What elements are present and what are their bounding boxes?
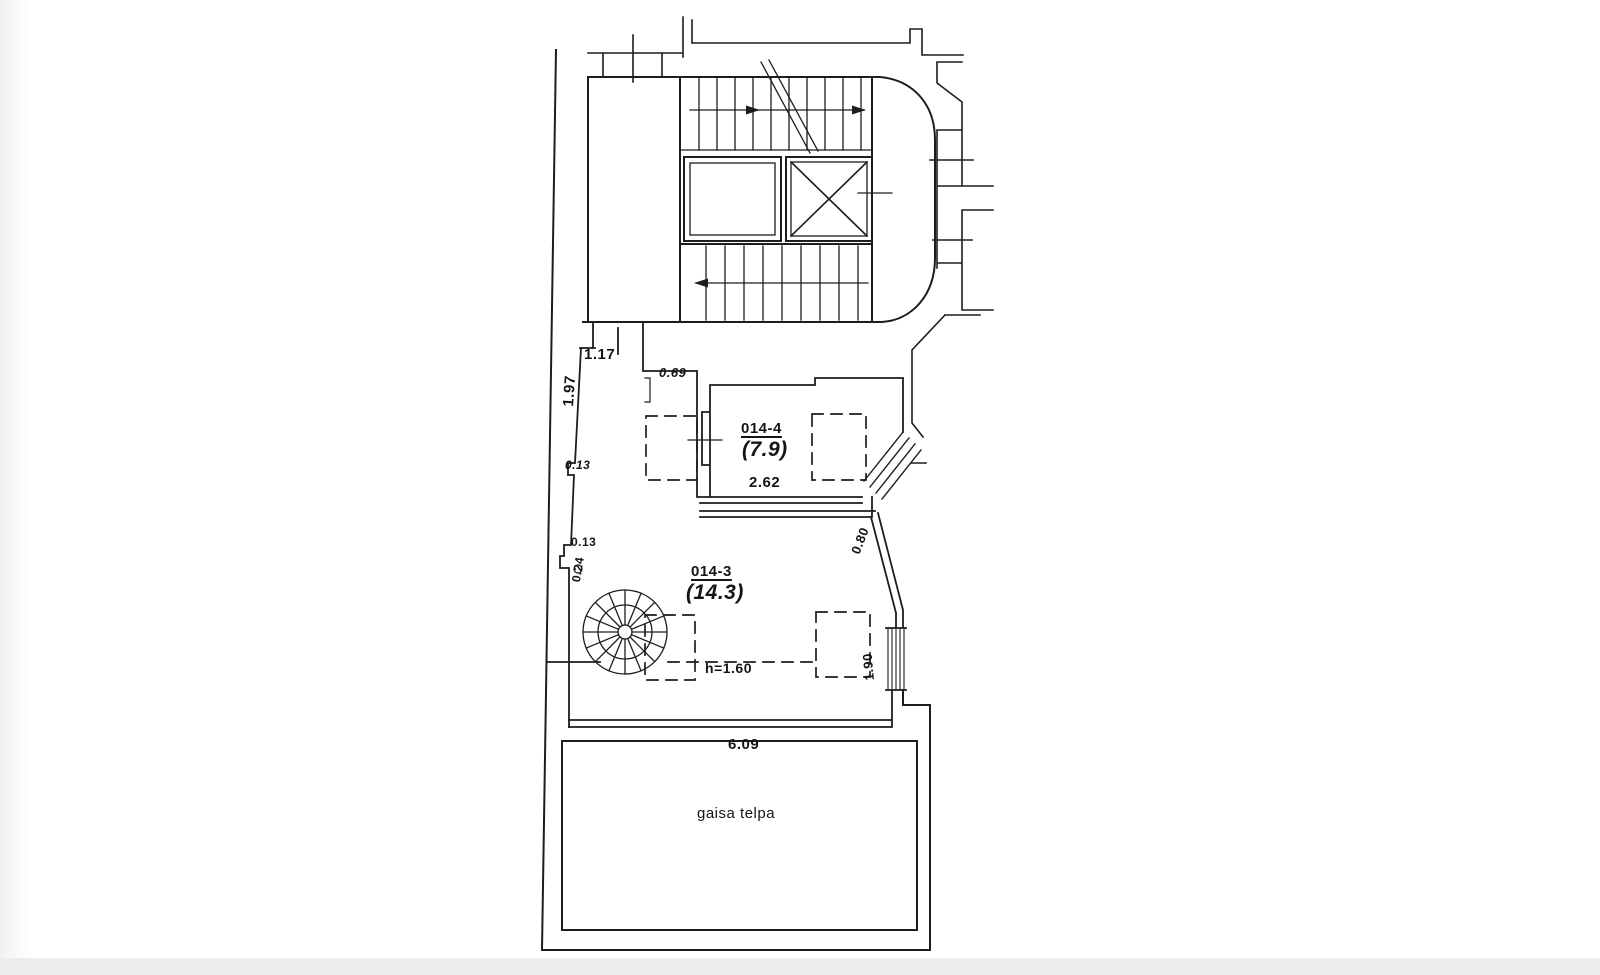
dim-window: 1.90 (861, 653, 876, 681)
staircase-enclosure (583, 77, 935, 322)
dim-jog: 0.24 (570, 556, 586, 583)
upper-stair-flight (680, 60, 872, 153)
dim-west-wall: 1.97 (561, 375, 578, 407)
page-bottom-margin (0, 958, 1600, 975)
floor-plan-drawing (0, 0, 1600, 975)
entry-steps (864, 432, 921, 499)
dim-low-ceiling: h=1.60 (705, 661, 752, 675)
room-014-4-id: 014-4 (741, 421, 782, 436)
dim-step: 0.69 (659, 366, 686, 379)
dim-stair-opening: 1.17 (584, 347, 615, 362)
room-014-4-walls (643, 322, 921, 517)
attic-west-wall (548, 322, 618, 727)
void-room-walls (562, 741, 917, 930)
dim-offset-a: 0.13 (565, 459, 590, 471)
room-014-3-id: 014-3 (691, 564, 732, 579)
room-014-4-area: (7.9) (742, 439, 788, 460)
door-jamb-mark (645, 378, 650, 402)
dim-room4-width: 2.62 (749, 475, 780, 490)
spiral-staircase (574, 565, 667, 674)
room-014-3-area: (14.3) (686, 582, 744, 603)
lower-stair-flight (694, 246, 868, 320)
adjacent-walls-right (911, 62, 993, 463)
dim-void-width: 6.09 (728, 737, 759, 752)
stair-direction-arrow (852, 106, 866, 115)
dim-offset-b: 0.13 (571, 536, 596, 548)
void-room-label: gaisa telpa (697, 806, 775, 821)
shafts (680, 157, 892, 244)
light-shaft (684, 157, 781, 241)
elevator-shaft (786, 157, 872, 241)
floor-plan-page: 1.17 1.97 0.69 014-4 (7.9) 0.13 2.62 0.1… (0, 0, 1600, 975)
elevator-x-mark (791, 162, 867, 236)
